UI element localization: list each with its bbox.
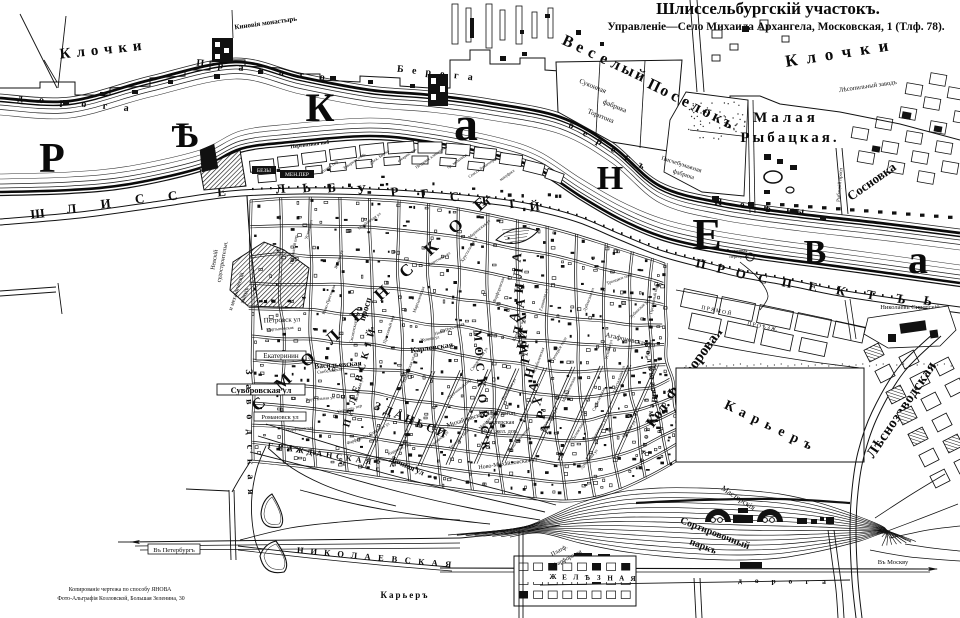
svg-text:БЕЗЫ: БЕЗЫ bbox=[257, 168, 271, 174]
svg-text:а: а bbox=[638, 458, 647, 463]
svg-text:О: О bbox=[475, 393, 490, 404]
svg-text:Шлиссельбургскій участокъ.: Шлиссельбургскій участокъ. bbox=[656, 0, 880, 18]
svg-text:о: о bbox=[81, 99, 87, 110]
svg-text:Л: Л bbox=[275, 181, 287, 197]
svg-text:о: о bbox=[755, 576, 759, 585]
svg-text:мастерская: мастерская bbox=[486, 420, 515, 426]
svg-text:переправа: переправа bbox=[729, 254, 748, 259]
svg-text:р: р bbox=[772, 576, 776, 585]
svg-text:Ник. жел. дор.: Ник. жел. дор. bbox=[482, 429, 519, 435]
svg-text:Н: Н bbox=[607, 574, 613, 582]
svg-text:а: а bbox=[454, 98, 478, 151]
svg-text:Въ Москву: Въ Москву bbox=[878, 559, 909, 566]
svg-text:С: С bbox=[473, 362, 488, 372]
svg-text:Ж: Ж bbox=[550, 573, 557, 581]
svg-text:Малая: Малая bbox=[753, 110, 819, 126]
svg-text:г: г bbox=[805, 577, 809, 586]
svg-text:Р: Р bbox=[39, 136, 65, 182]
svg-text:О: О bbox=[337, 549, 345, 560]
svg-text:Ѣ: Ѣ bbox=[171, 115, 199, 155]
svg-text:д: д bbox=[738, 576, 742, 585]
svg-text:А: А bbox=[619, 575, 624, 583]
svg-text:К: К bbox=[305, 85, 334, 130]
svg-text:Я: Я bbox=[630, 575, 635, 583]
svg-text:Управленіе—Село Михаила Арханг: Управленіе—Село Михаила Архангела, Моско… bbox=[607, 21, 944, 33]
svg-text:о: о bbox=[642, 435, 651, 440]
svg-text:П: П bbox=[196, 58, 205, 70]
svg-text:о: о bbox=[789, 577, 793, 586]
svg-text:И: И bbox=[511, 282, 527, 294]
svg-text:Р: Р bbox=[390, 184, 400, 200]
svg-text:а: а bbox=[243, 384, 254, 390]
svg-text:К: К bbox=[479, 441, 494, 451]
svg-text:Й: Й bbox=[529, 199, 541, 215]
svg-text:Романовск ул: Романовск ул bbox=[261, 414, 299, 421]
svg-text:а: а bbox=[908, 237, 928, 282]
svg-text:Въ Петербургъ: Въ Петербургъ bbox=[153, 547, 195, 554]
svg-text:Л: Л bbox=[66, 201, 78, 217]
svg-text:К: К bbox=[474, 378, 489, 388]
svg-text:С: С bbox=[134, 191, 145, 207]
svg-text:Я: Я bbox=[445, 559, 452, 569]
svg-text:Екатеринин: Екатеринин bbox=[263, 352, 298, 360]
svg-text:д: д bbox=[17, 93, 23, 104]
svg-text:Л: Л bbox=[573, 574, 579, 582]
svg-text:Петровск ул: Петровск ул bbox=[264, 315, 301, 324]
svg-text:Карьеръ: Карьеръ bbox=[381, 590, 430, 600]
svg-text:Временная: Временная bbox=[727, 248, 748, 253]
svg-text:Главн. вагон.: Главн. вагон. bbox=[483, 411, 517, 417]
svg-text:Фото-Альграфія Козловской, Бол: Фото-Альграфія Козловской, Большая Зелен… bbox=[57, 595, 184, 602]
svg-text:Ѣ: Ѣ bbox=[585, 574, 591, 582]
svg-text:И: И bbox=[310, 546, 318, 557]
svg-text:С: С bbox=[449, 189, 460, 205]
svg-text:О: О bbox=[472, 346, 487, 357]
svg-text:а: а bbox=[123, 103, 129, 114]
svg-text:д: д bbox=[244, 429, 255, 435]
svg-text:В: В bbox=[804, 234, 827, 271]
svg-text:Ш: Ш bbox=[650, 393, 660, 403]
svg-text:З: З bbox=[243, 369, 254, 375]
svg-text:Ш: Ш bbox=[30, 205, 46, 221]
svg-text:Е: Е bbox=[692, 210, 721, 259]
svg-text:М: М bbox=[470, 329, 485, 342]
svg-text:Н: Н bbox=[297, 545, 305, 556]
svg-text:к: к bbox=[244, 459, 255, 466]
svg-text:МЕН.ПЕР: МЕН.ПЕР bbox=[285, 172, 309, 178]
svg-text:Н: Н bbox=[597, 160, 623, 197]
svg-text:о: о bbox=[244, 414, 255, 420]
svg-text:З: З bbox=[597, 574, 601, 582]
svg-text:а: а bbox=[245, 474, 256, 480]
svg-text:а: а bbox=[822, 577, 826, 586]
svg-text:о: о bbox=[38, 95, 44, 106]
svg-text:Копированіе чертежа по способу: Копированіе чертежа по способу ЯНОВА bbox=[69, 586, 172, 593]
svg-text:Рыбацкая.: Рыбацкая. bbox=[740, 130, 839, 146]
svg-text:Е: Е bbox=[562, 573, 567, 581]
svg-text:ы: ы bbox=[796, 206, 805, 218]
svg-text:И: И bbox=[100, 196, 112, 212]
svg-text:С: С bbox=[167, 188, 178, 204]
svg-text:С: С bbox=[404, 555, 411, 565]
